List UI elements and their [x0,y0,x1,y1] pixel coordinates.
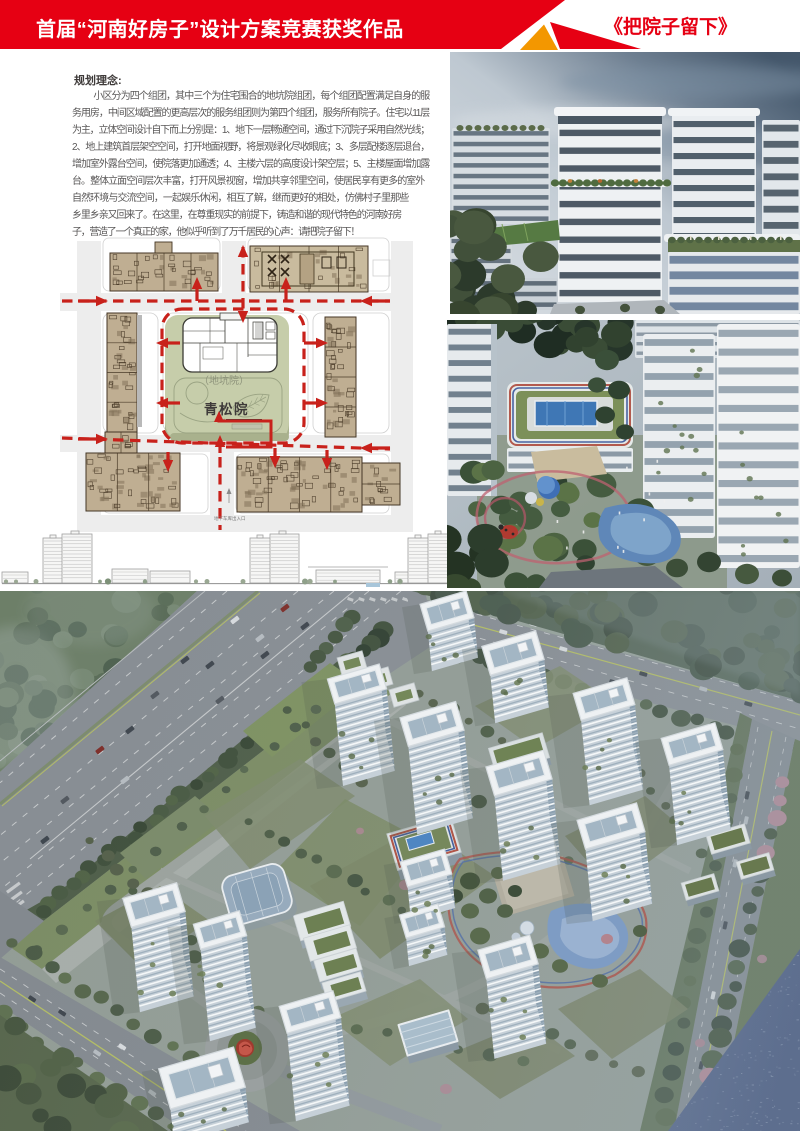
svg-text:地下车库出入口: 地下车库出入口 [214,515,246,522]
svg-text:青松院: 青松院 [204,401,249,417]
svg-text:（地坑院）: （地坑院） [199,374,249,387]
